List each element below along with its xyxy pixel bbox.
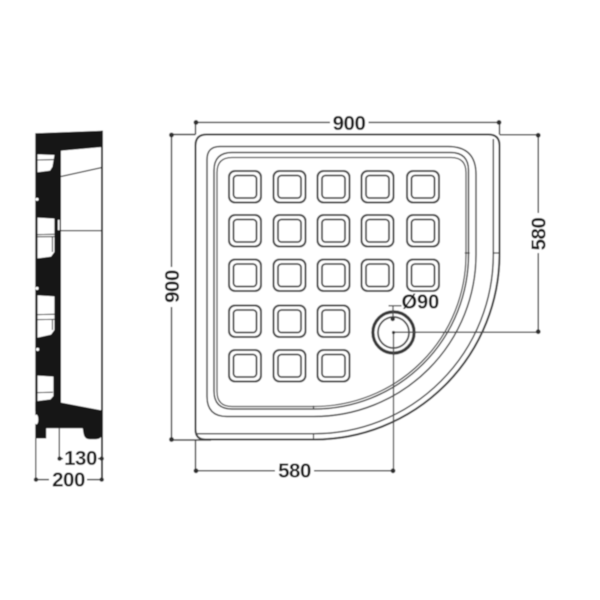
- svg-text:130: 130: [64, 447, 97, 470]
- svg-text:Ø90: Ø90: [402, 292, 440, 314]
- svg-text:900: 900: [333, 112, 366, 135]
- svg-text:200: 200: [52, 468, 85, 491]
- svg-text:580: 580: [528, 218, 551, 251]
- svg-text:900: 900: [161, 270, 184, 303]
- svg-text:580: 580: [278, 459, 311, 482]
